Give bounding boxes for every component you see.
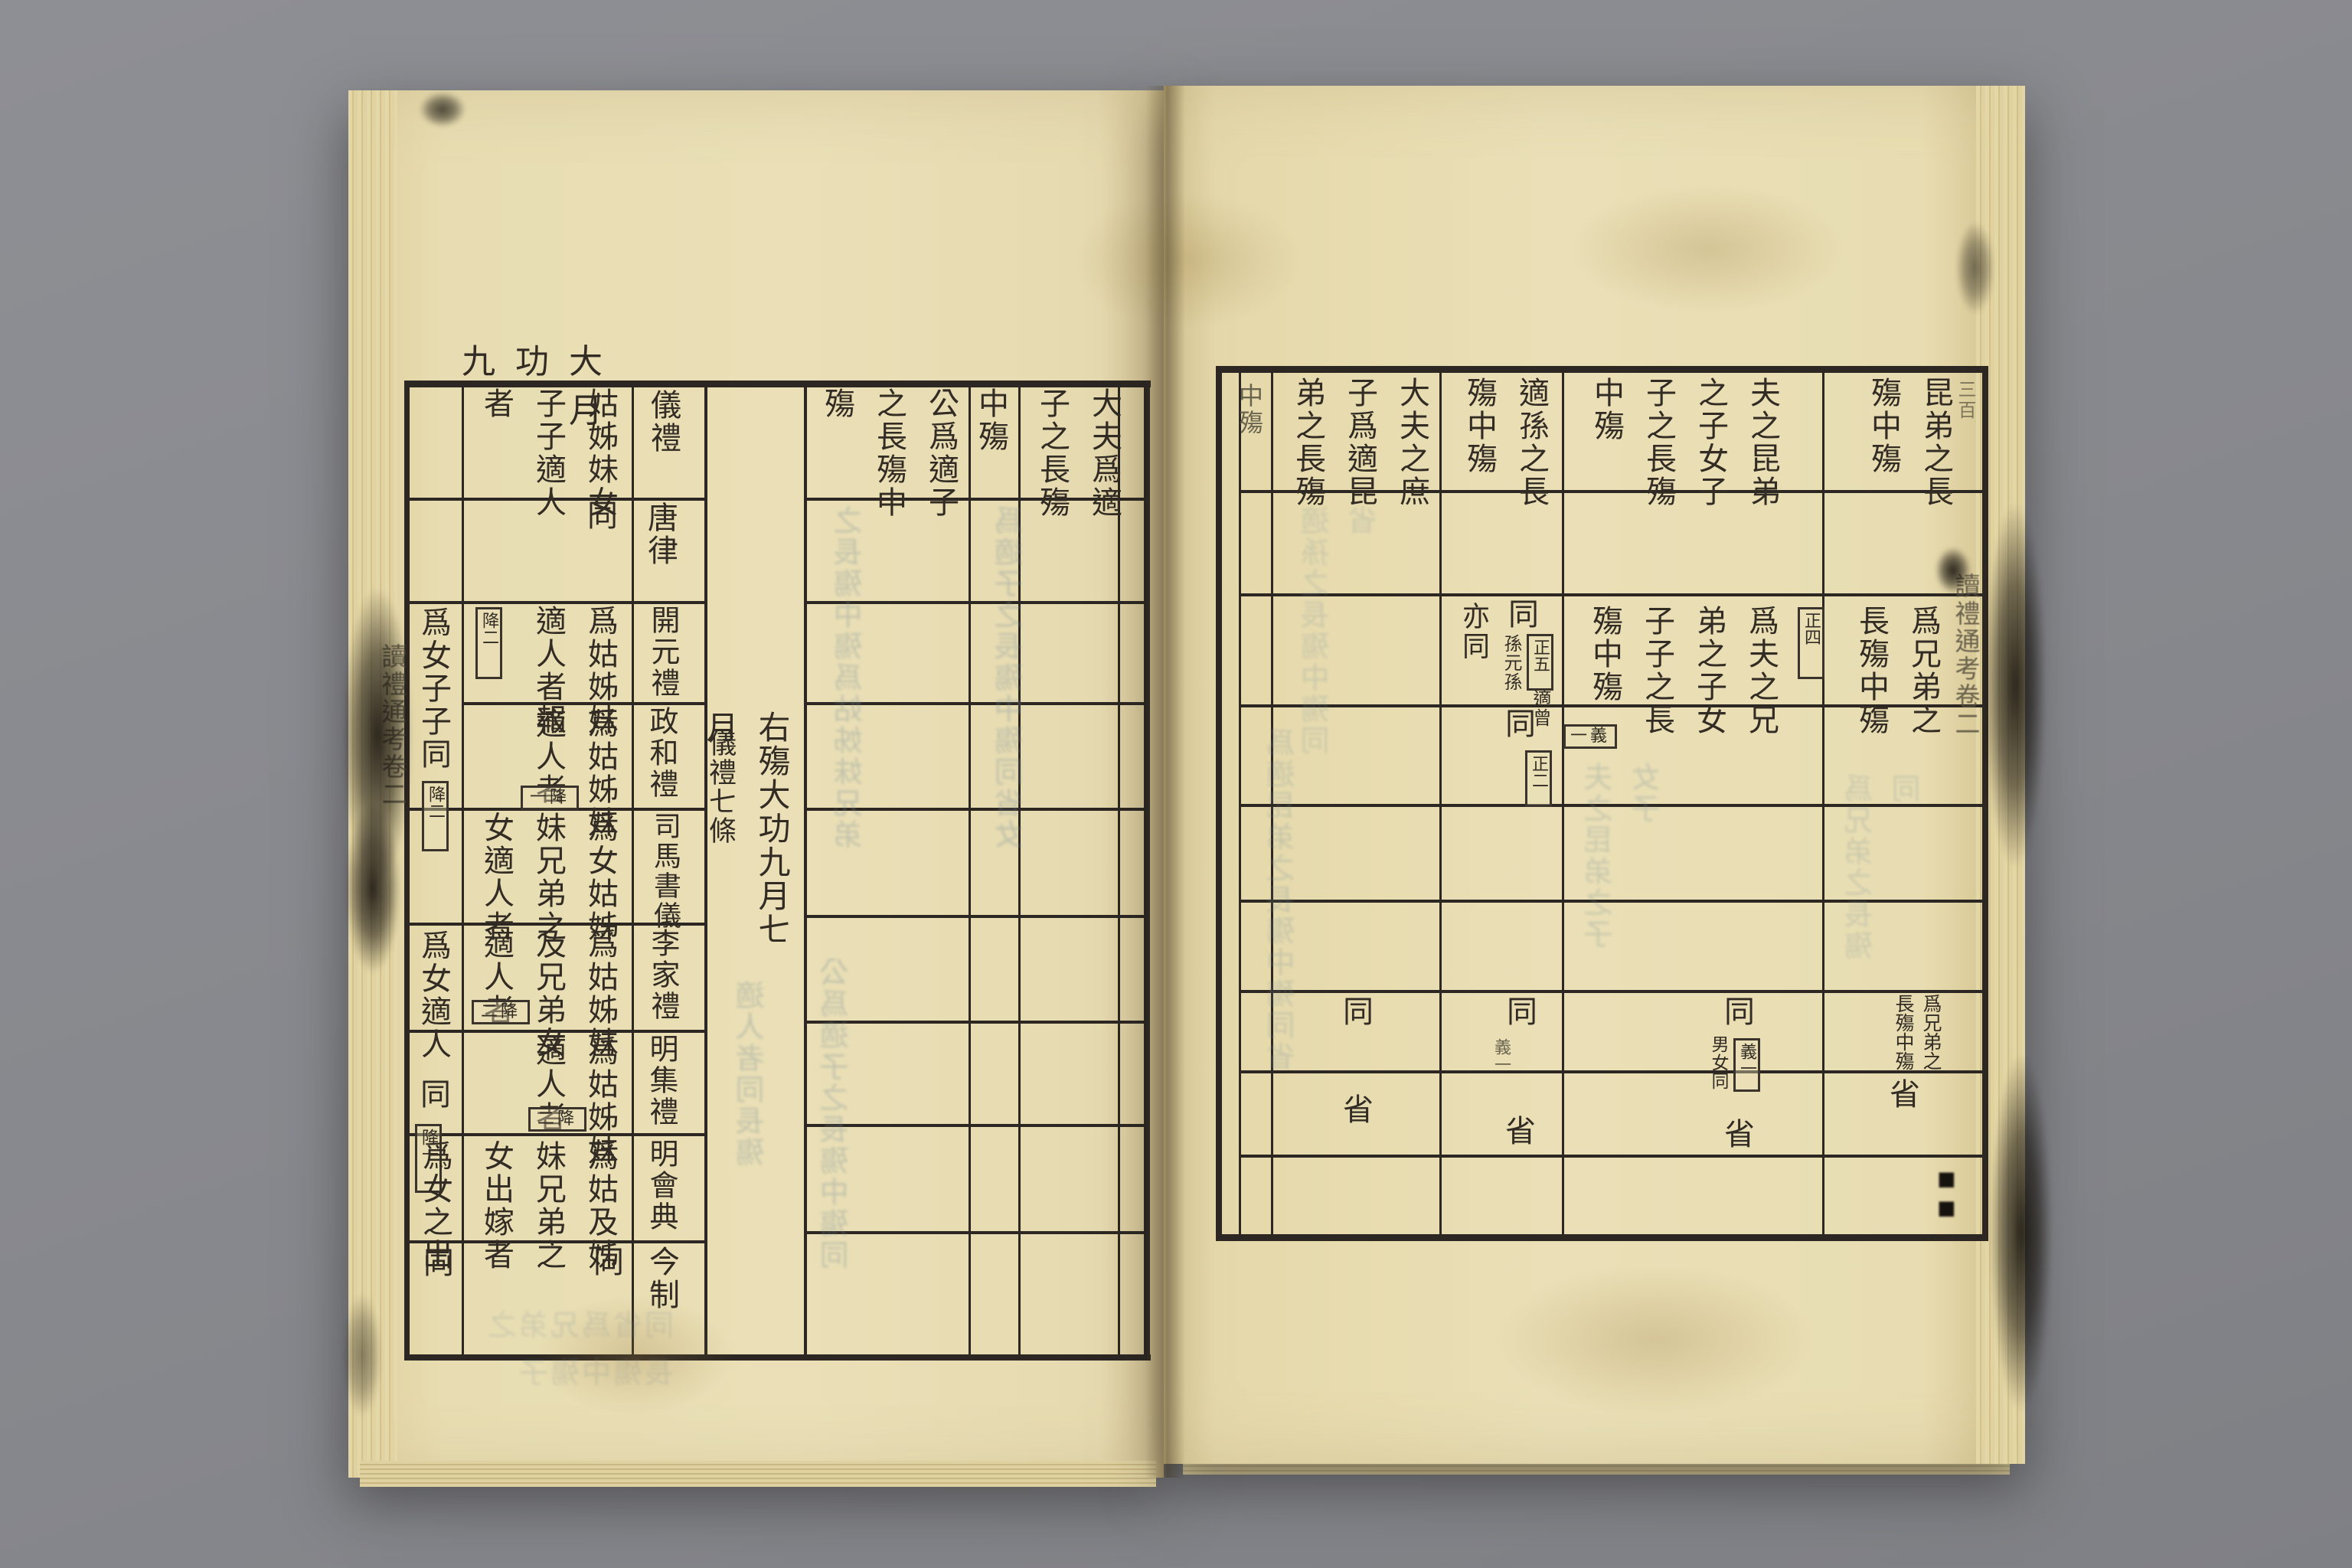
- cell-c-huidian: 省: [1504, 1115, 1543, 1158]
- bleedthrough-text: 之長殤中殤爲姑姊妹兄弟: [827, 505, 957, 934]
- paper-stain: [536, 1294, 735, 1416]
- cell-case1-jili-note: 降二: [528, 1107, 586, 1132]
- book-gutter-shadow: [1145, 86, 1185, 1478]
- grid-line: [804, 381, 807, 1361]
- row-label-ming-jili: 明集禮: [640, 1034, 684, 1137]
- cell-c-kaiyuan-yitong: 亦同: [1456, 602, 1491, 675]
- chapter-margin-title: 大功九月: [417, 334, 622, 377]
- cell-c-tanglv-tong2: 同: [1504, 707, 1543, 747]
- row-label-jiali: 李家禮: [642, 928, 686, 1031]
- cell-case1-tanglv: 同: [583, 499, 626, 545]
- edge-stamp: ◼◼: [1928, 1165, 1962, 1239]
- table-border-bottom: [1216, 1234, 1988, 1241]
- right-header-kundi: 昆弟之長殤中殤: [1854, 377, 1962, 524]
- cell-c-tanglv-small2: 孫元孫: [1501, 634, 1522, 703]
- row-label-tanglv: 唐律: [642, 501, 686, 574]
- cell-case2-merged-note: 降二: [422, 781, 449, 851]
- row-label-zhengheli: 政和禮: [640, 706, 684, 809]
- bleedthrough-text: 爲適昆弟之長殤中殤同省: [1259, 727, 1420, 1202]
- bleedthrough-text: 爲適子之長殤中殤同省女: [988, 505, 1110, 1041]
- edge-ink-smudge: [343, 1294, 381, 1416]
- cell-b-jili: 同: [1723, 995, 1762, 1035]
- bleedthrough-text: 適人者同長殤: [729, 980, 798, 1302]
- cell-case1-jiali-note: 降二: [472, 1000, 530, 1024]
- bleedthrough-text: 爲兄弟之長殤同: [1837, 773, 1968, 980]
- right-header-dafu-shuzi: 大夫之庶子爲適昆弟之長殤: [1276, 377, 1438, 524]
- row-label-ming-huidian: 明會典: [640, 1138, 684, 1242]
- cell-b-jili-box: 義一: [1733, 1038, 1760, 1092]
- bleedthrough-text: 適孫之長殤中殤同省: [1294, 505, 1416, 781]
- cell-a-tanglv-note: 正四: [1798, 607, 1824, 679]
- corner-fold-mark: [420, 92, 465, 127]
- cell-c-jili-note: 義一: [1491, 1038, 1511, 1083]
- cell-a-huidian: 省: [1888, 1078, 1928, 1121]
- grid-line: [462, 381, 464, 1361]
- grid-line: [969, 381, 971, 1361]
- table-border-top: [404, 381, 1151, 387]
- cell-case2-jiali: 爲女適人: [410, 929, 459, 1075]
- right-header-fuzhikundi: 夫之昆弟之子女子子之長殤中殤: [1565, 377, 1788, 524]
- edge-ink-smudge: [1984, 505, 2046, 865]
- cell-case1-jinzhi: 同: [590, 1246, 632, 1292]
- cell-b-tanglv-note: 義一: [1563, 724, 1617, 749]
- grid-line: [404, 601, 704, 604]
- cell-case2-jinzhi: 同: [420, 1246, 462, 1291]
- cell-c-tanglv-box1: 正五: [1527, 634, 1553, 691]
- grid-line: [704, 381, 707, 1361]
- summary-sub: 儀禮七條: [706, 729, 746, 863]
- book-photo: 大功九月 讀禮通考卷二 大夫爲適子之長殤 中殤 公爲適子之長殤中殤 姑姊妹女子子…: [0, 0, 2352, 1568]
- left-header-zhongshang: 中殤: [972, 387, 1017, 460]
- edge-ink-smudge: [1935, 547, 1971, 593]
- table-border-top: [1216, 366, 1988, 373]
- bleedthrough-text: 夫之昆弟之子女子: [1577, 762, 1776, 961]
- cell-a-jili: 爲兄弟之長殤中殤: [1837, 994, 1945, 1073]
- row-label-yili: 儀禮: [645, 389, 689, 462]
- cell-c-jili: 同: [1505, 995, 1545, 1035]
- row-label-kaiyuanli: 開元禮: [642, 605, 686, 708]
- right-edge-book-title: 讀禮通考卷二: [1945, 573, 1981, 791]
- edge-ink-smudge: [1956, 222, 1994, 314]
- right-header-zhongshang: 中殤: [1225, 383, 1265, 452]
- paper-stain: [1072, 191, 1302, 329]
- paper-stain: [1493, 1263, 1815, 1416]
- cell-b-jili-small: 男女同: [1709, 1035, 1729, 1101]
- right-edge-folio-mark: 三百: [1951, 380, 1977, 446]
- cell-b-huidian: 省: [1723, 1118, 1762, 1161]
- bleedthrough-text: 公爲適子之長殤中殤同: [813, 957, 959, 1279]
- summary-main: 右殤大功九月七月: [750, 710, 798, 963]
- edge-ink-smudge: [346, 804, 400, 972]
- cell-case1-kaiyuan-note: 降二: [475, 607, 502, 679]
- cell-case2-merged: 爲女子子同: [410, 606, 459, 782]
- edge-ink-smudge: [1991, 1057, 2052, 1409]
- cell-case1-zhenghe-note: 降一: [521, 786, 579, 810]
- cell-case2-jili: 同: [416, 1078, 459, 1122]
- right-header-disun: 適孫之長殤中殤: [1445, 377, 1557, 524]
- cell-c-tanglv-box2: 正二: [1525, 750, 1552, 807]
- table-border-left: [1216, 366, 1222, 1241]
- left-page-bottom-edge: [360, 1461, 1156, 1487]
- paper-stain: [1570, 184, 1845, 314]
